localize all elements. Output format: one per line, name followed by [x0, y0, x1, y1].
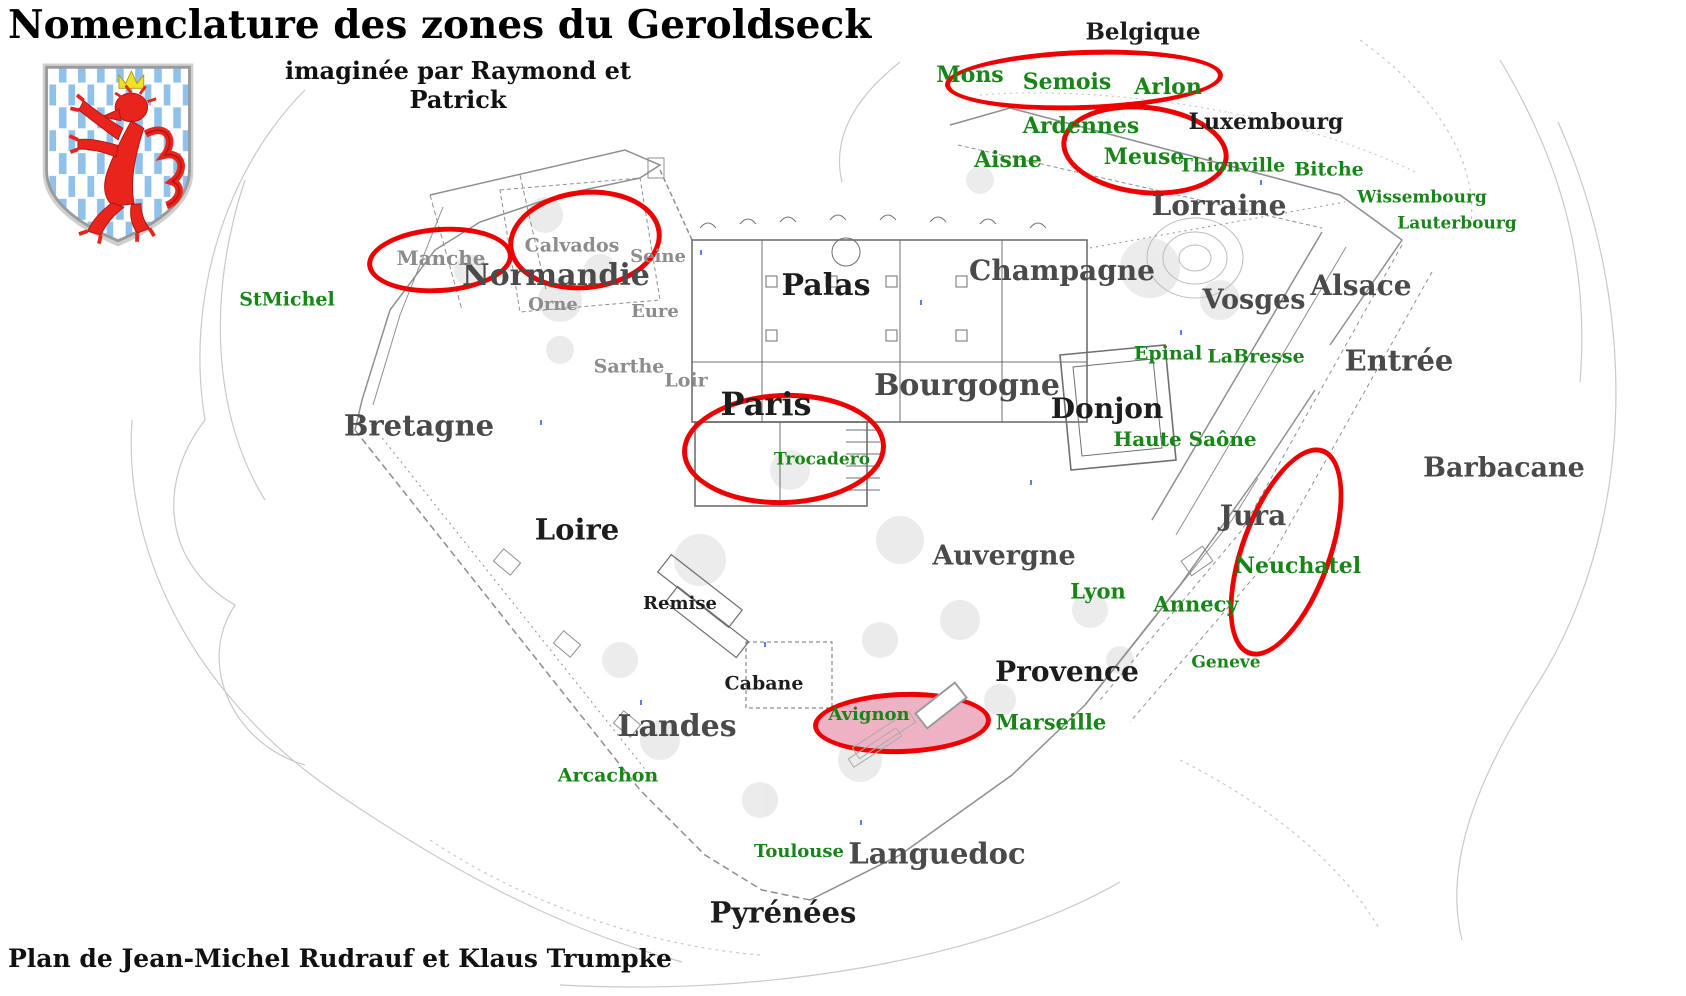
luxembourg-lion-shield-icon: [37, 57, 199, 253]
map: BelgiqueLuxembourgLorraineAlsaceVosgesEn…: [0, 0, 1686, 996]
page-subtitle: imaginée par Raymond et Patrick: [240, 56, 676, 114]
credit-line: Plan de Jean-Michel Rudrauf et Klaus Tru…: [8, 944, 672, 973]
castle-plan-drawing: [0, 0, 1686, 996]
page-title: Nomenclature des zones du Geroldseck: [8, 2, 871, 48]
